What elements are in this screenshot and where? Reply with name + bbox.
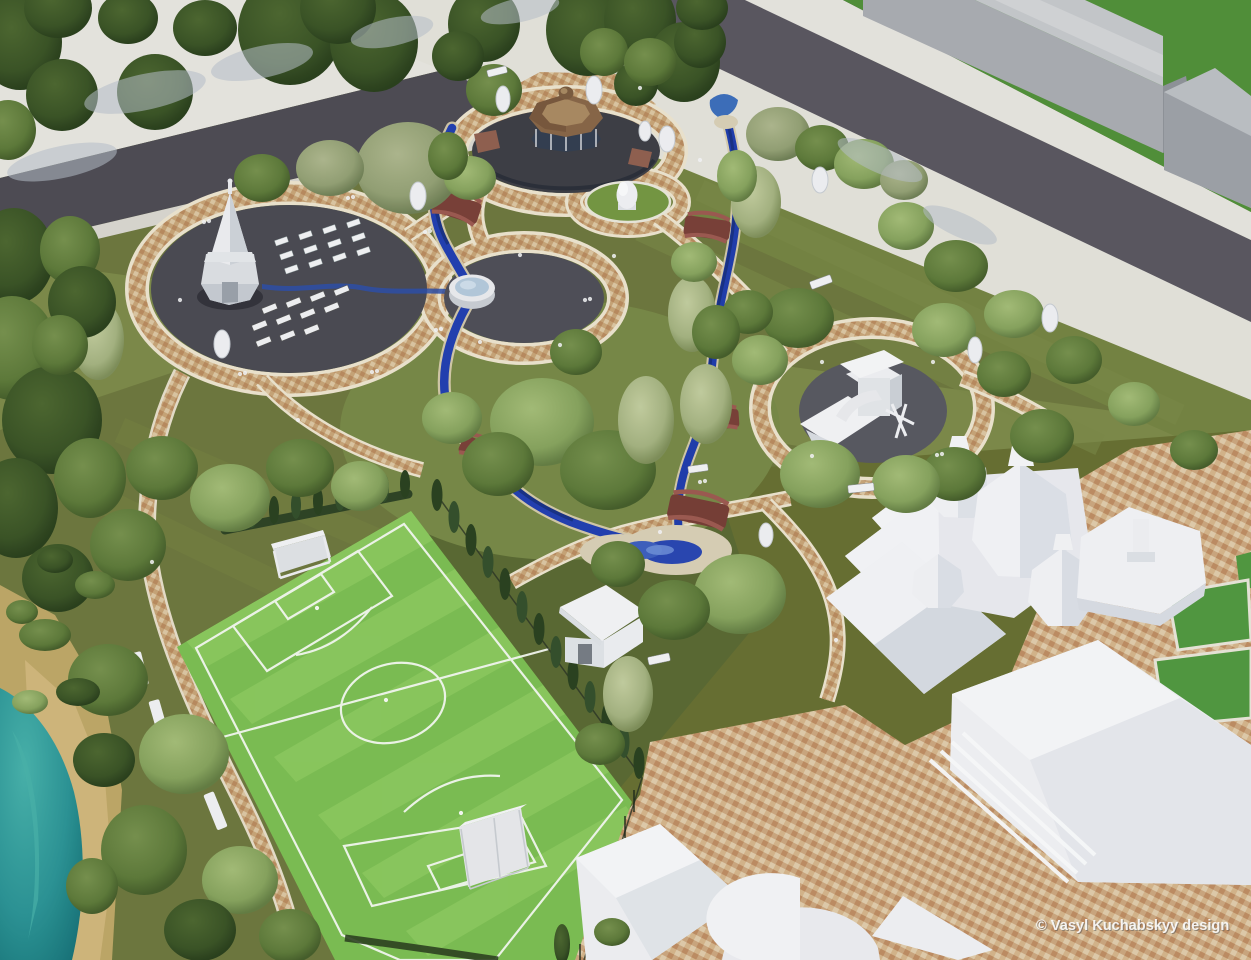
svg-text:© Vasyl Kuchabskyy design: © Vasyl Kuchabskyy design <box>1036 918 1229 934</box>
